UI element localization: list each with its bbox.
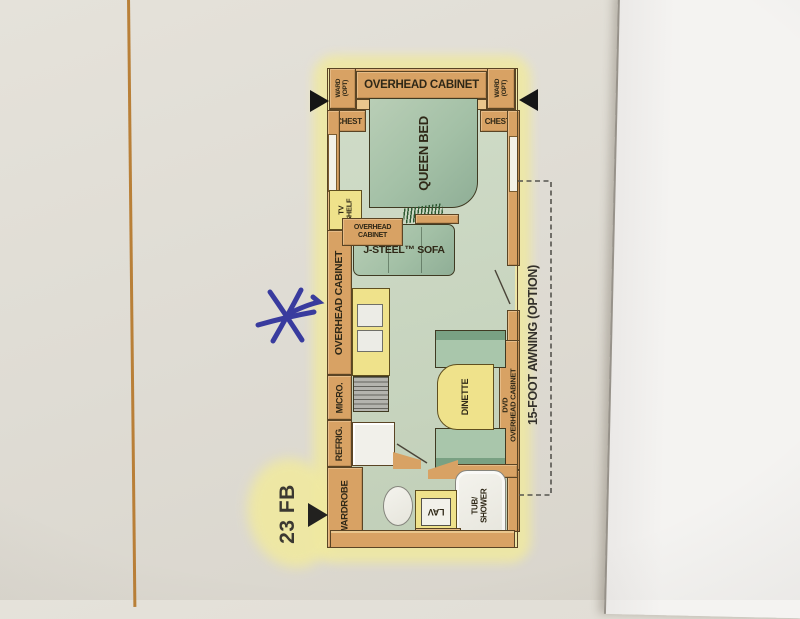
marker-triangle-right-icon — [519, 89, 538, 111]
photo-of-floorplan-page: { "labels": { "model": "23 FB", "awning"… — [0, 0, 800, 600]
awning-label-text: 15-FOOT AWNING (OPTION) — [526, 265, 540, 425]
marker-triangle-left-icon — [310, 90, 329, 112]
awning-label: 15-FOOT AWNING (OPTION) — [510, 252, 556, 437]
model-label-text: 23 FB — [276, 484, 300, 544]
notebook-rule-line — [127, 0, 136, 607]
rv-floor-plan: WARD (OPT) OVERHEAD CABINET WARD (OPT) C… — [327, 66, 521, 550]
plan-outline — [327, 68, 518, 548]
overlapping-white-page — [604, 0, 800, 619]
pen-star-annotation-icon — [252, 281, 326, 351]
model-label: 23 FB — [262, 466, 314, 562]
